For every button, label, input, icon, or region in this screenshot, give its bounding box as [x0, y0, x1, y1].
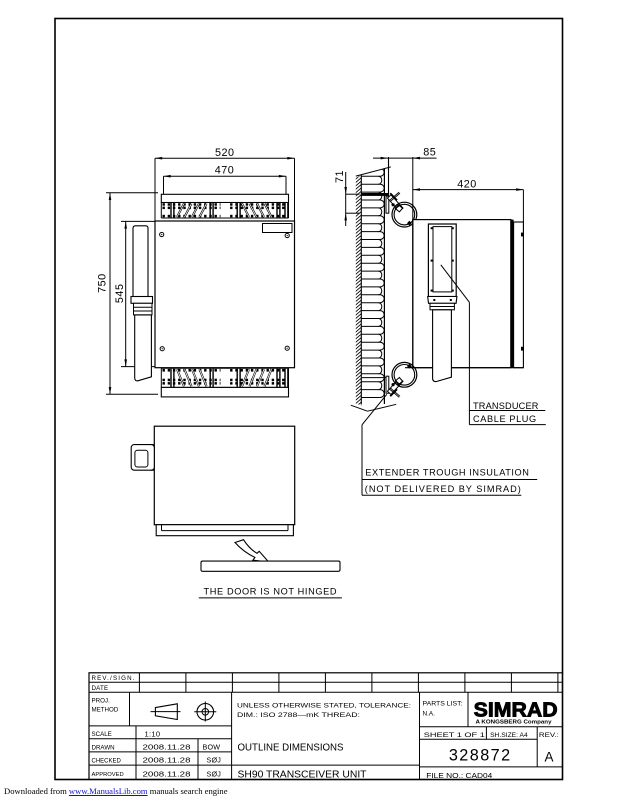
svg-text:CABLE PLUG: CABLE PLUG: [473, 414, 536, 424]
svg-text:A: A: [544, 750, 553, 765]
svg-text:CHECKED: CHECKED: [92, 758, 122, 764]
svg-text:METHOD: METHOD: [92, 706, 119, 713]
svg-text:750: 750: [97, 273, 109, 293]
svg-text:2008.11.28: 2008.11.28: [143, 756, 191, 765]
svg-text:DATE: DATE: [92, 685, 109, 692]
svg-text:520: 520: [215, 147, 235, 159]
svg-text:EXTENDER TROUGH INSULATION: EXTENDER TROUGH INSULATION: [365, 468, 529, 478]
svg-text:71: 71: [334, 170, 346, 183]
svg-text:N.A.: N.A.: [423, 710, 436, 717]
svg-text:SØJ: SØJ: [207, 770, 222, 779]
svg-text:TRANSDUCER: TRANSDUCER: [473, 401, 539, 411]
svg-text:SHEET 1 OF 1: SHEET 1 OF 1: [424, 732, 485, 739]
svg-text:THE DOOR IS NOT HINGED: THE DOOR IS NOT HINGED: [204, 586, 337, 596]
svg-text:2008.11.28: 2008.11.28: [143, 770, 191, 779]
svg-text:85: 85: [423, 147, 436, 159]
svg-text:PARTS LIST:: PARTS LIST:: [423, 700, 463, 707]
svg-text:SH.SIZE: A4: SH.SIZE: A4: [490, 732, 528, 739]
svg-text:A KONGSBERG Company: A KONGSBERG Company: [476, 720, 553, 726]
svg-text:SØJ: SØJ: [207, 756, 222, 765]
svg-text:1:10: 1:10: [145, 729, 161, 738]
svg-text:OUTLINE DIMENSIONS: OUTLINE DIMENSIONS: [238, 743, 344, 754]
svg-text:BOW: BOW: [203, 743, 221, 752]
svg-text:420: 420: [457, 178, 477, 190]
svg-text:2008.11.28: 2008.11.28: [143, 743, 191, 752]
svg-text:SIMRAD: SIMRAD: [474, 698, 558, 721]
svg-text:DIM.: ISO 2788—mK THREAD:: DIM.: ISO 2788—mK THREAD:: [237, 712, 360, 719]
svg-text:SH90 TRANSCEIVER UNIT: SH90 TRANSCEIVER UNIT: [238, 770, 367, 781]
svg-text:545: 545: [114, 284, 126, 304]
svg-text:REV./SIGN.: REV./SIGN.: [92, 675, 135, 682]
svg-text:470: 470: [215, 165, 235, 177]
svg-text:APPROVED: APPROVED: [92, 772, 124, 778]
svg-text:SCALE: SCALE: [92, 731, 112, 738]
svg-text:REV.:: REV.:: [539, 732, 559, 739]
svg-text:FILE NO.: CAD04: FILE NO.: CAD04: [426, 771, 492, 780]
svg-text:PROJ.: PROJ.: [92, 697, 111, 704]
svg-text:(NOT DELIVERED BY SIMRAD): (NOT DELIVERED BY SIMRAD): [365, 484, 521, 494]
svg-text:UNLESS OTHERWISE STATED, TOLER: UNLESS OTHERWISE STATED, TOLERANCE:: [237, 703, 411, 710]
svg-text:DRAWN: DRAWN: [92, 744, 115, 751]
